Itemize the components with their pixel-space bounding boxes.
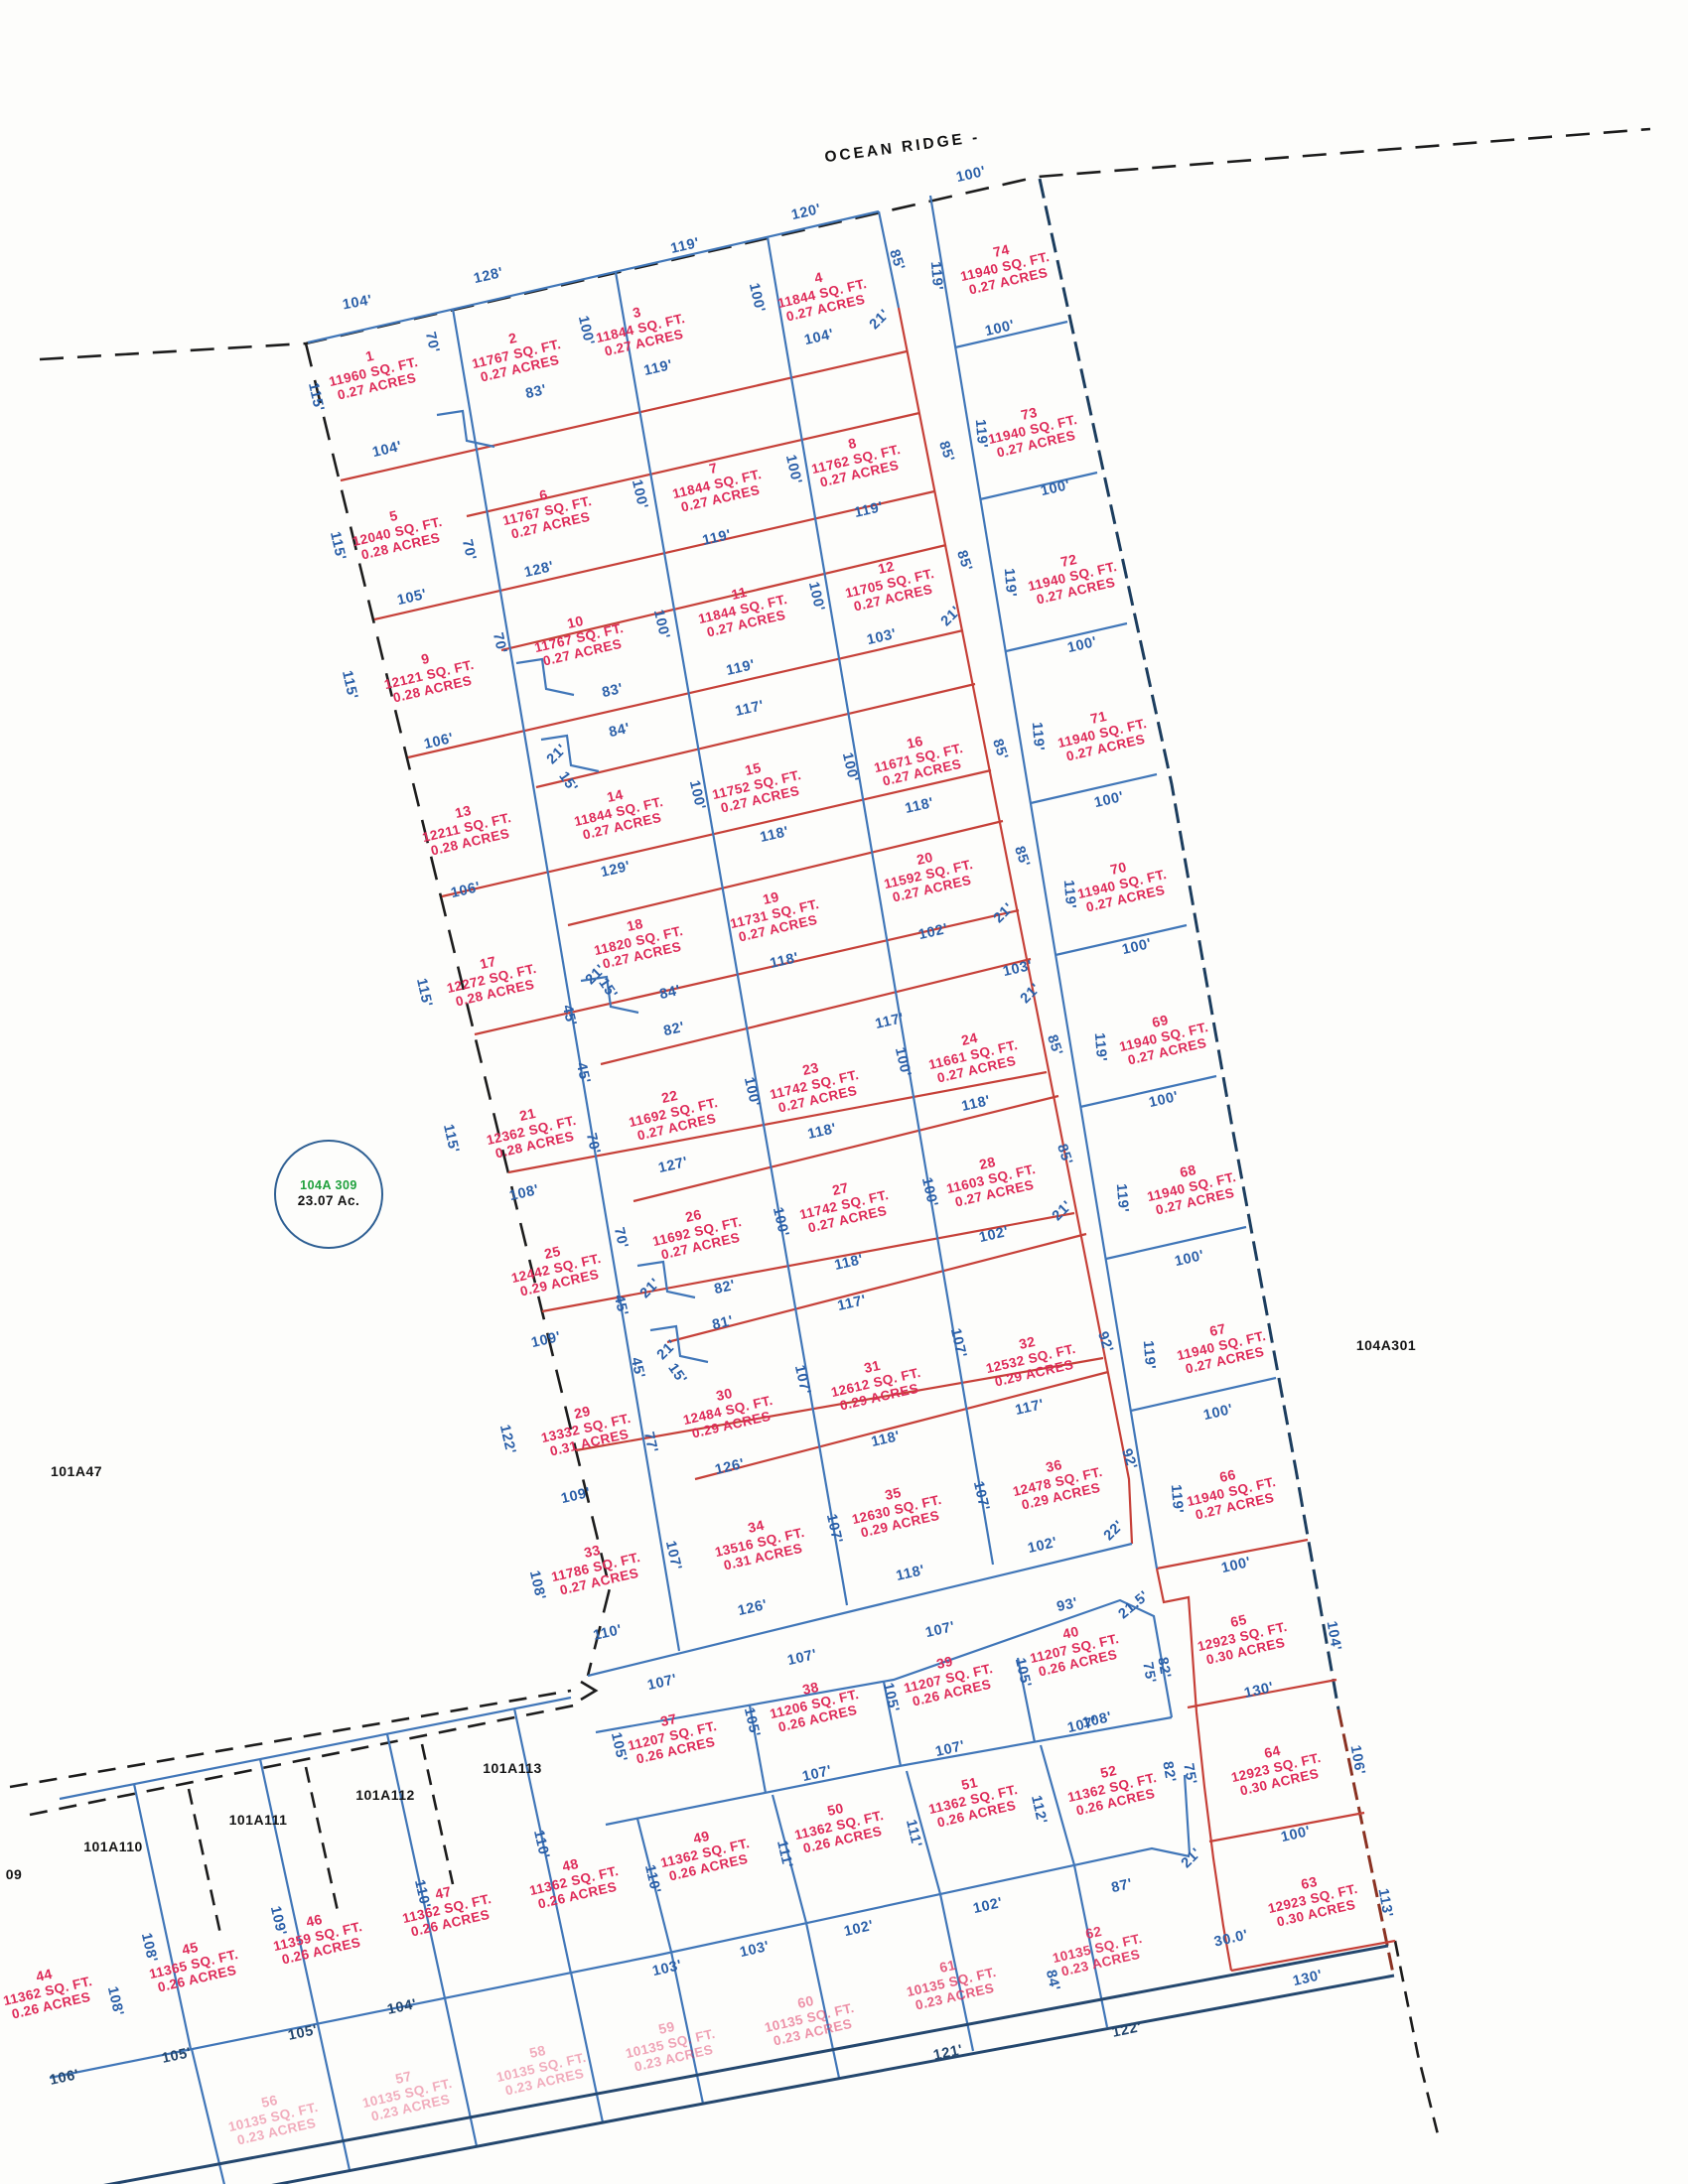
bottom-road-double-line	[79, 1946, 1394, 2184]
dimension-label: 75'	[1180, 1762, 1198, 1786]
dimension-label: 119'	[1060, 880, 1078, 910]
dimension-label: 82'	[1159, 1760, 1178, 1784]
parcel-ref-101A110: 101A110	[83, 1839, 143, 1854]
parcel-ref-101A47: 101A47	[51, 1463, 102, 1479]
parcel-id-circle: 104A 309 23.07 Ac.	[274, 1140, 383, 1249]
dimension-label: 119'	[1168, 1484, 1186, 1515]
dimension-label: 119'	[1001, 568, 1019, 599]
dimension-label: 119'	[1113, 1183, 1131, 1214]
dimension-label: 119'	[972, 419, 990, 450]
parcel-ref-101A113: 101A113	[483, 1760, 542, 1776]
parcel-ref-101A111: 101A111	[229, 1812, 288, 1828]
parcel-ref-104A301: 104A301	[1356, 1337, 1416, 1353]
plat-map: OCEAN RIDGE - 104A 309 23.07 Ac. 111960 …	[0, 0, 1688, 2184]
blue-lot-lines	[50, 196, 1276, 2184]
dimension-label: 119'	[1140, 1340, 1158, 1371]
dimension-label: 119'	[1029, 722, 1047, 752]
parcel-acreage: 23.07 Ac.	[298, 1193, 360, 1210]
parcel-id-green: 104A 309	[300, 1178, 357, 1194]
dimension-label: 119'	[1091, 1032, 1109, 1063]
dimension-label: 119'	[927, 261, 945, 292]
parcel-ref-101A112: 101A112	[355, 1787, 415, 1803]
dimension-label: 75'	[1139, 1661, 1158, 1685]
parcel-ref-09: 09	[6, 1866, 23, 1882]
